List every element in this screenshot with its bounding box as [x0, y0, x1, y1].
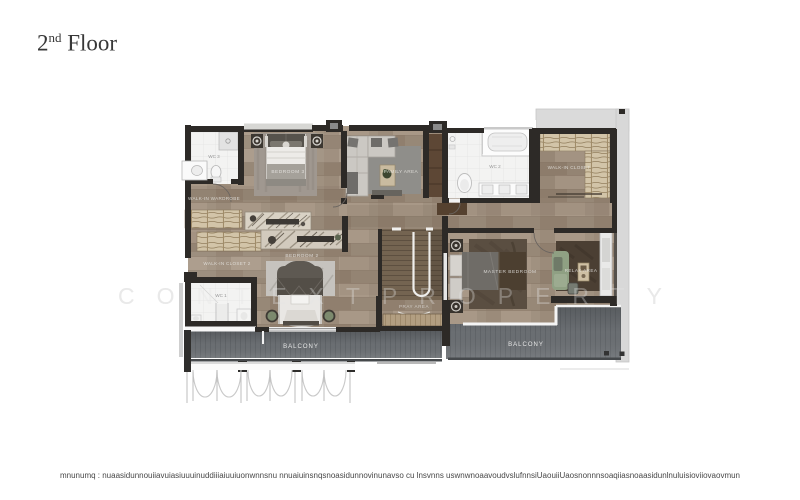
svg-text:FAMILY AREA: FAMILY AREA — [384, 169, 419, 175]
svg-text:BEDROOM 2: BEDROOM 2 — [285, 253, 318, 259]
svg-text:BALCONY: BALCONY — [508, 342, 544, 348]
svg-text:BALCONY: BALCONY — [283, 344, 319, 350]
svg-text:MASTER BEDROOM: MASTER BEDROOM — [483, 269, 536, 275]
svg-text:WC 2: WC 2 — [489, 164, 501, 169]
svg-text:WALK-IN CLOSET: WALK-IN CLOSET — [548, 165, 591, 170]
svg-text:RELAX AREA: RELAX AREA — [565, 268, 598, 273]
svg-text:WALK-IN WARDROBE: WALK-IN WARDROBE — [188, 196, 240, 201]
svg-text:WALK-IN CLOSET 2: WALK-IN CLOSET 2 — [203, 261, 250, 266]
svg-text:BEDROOM 3: BEDROOM 3 — [271, 169, 304, 175]
svg-text:WC 3: WC 3 — [208, 154, 220, 159]
